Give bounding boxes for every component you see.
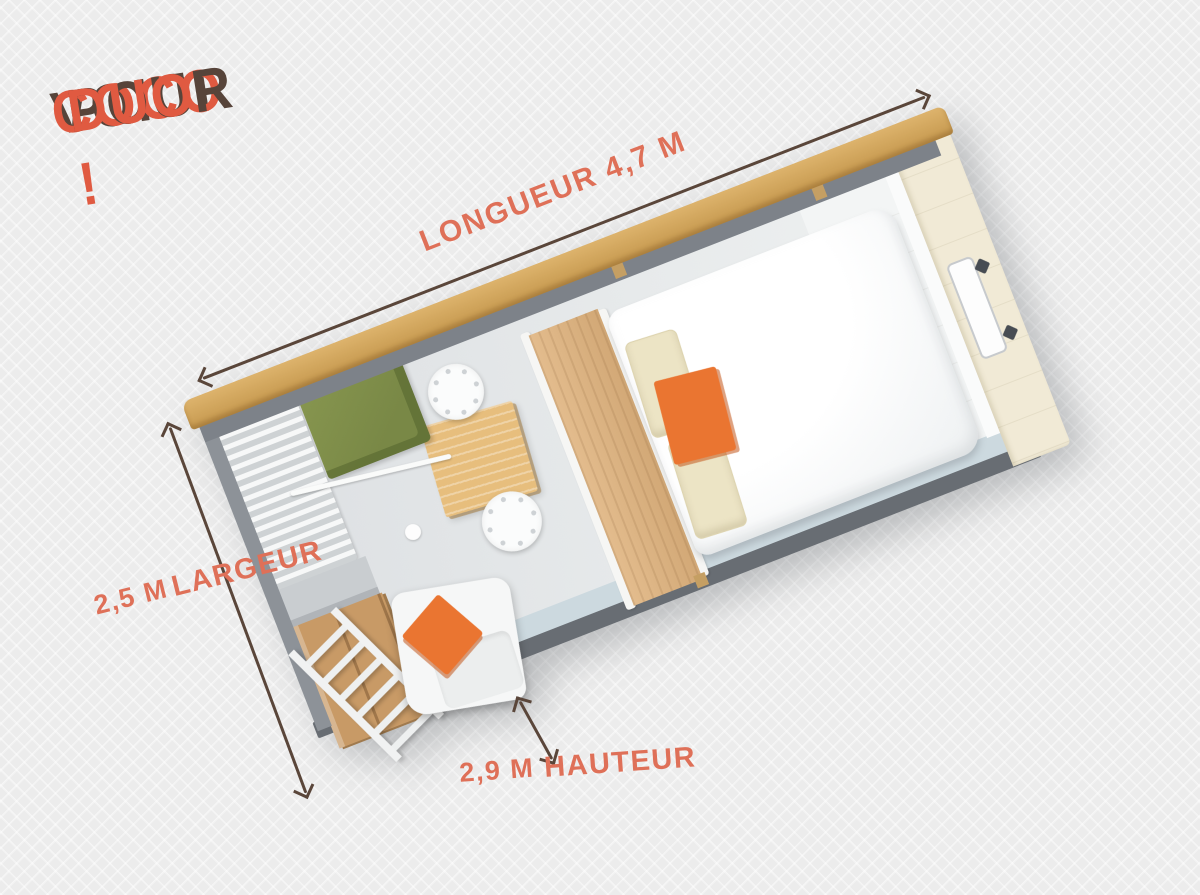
height-label-text: HAUTEUR xyxy=(543,739,698,787)
title-word-duo: DUO ! xyxy=(62,57,212,223)
cabin xyxy=(193,116,1076,761)
page-title: VOICI COCO POUR DUO ! xyxy=(47,12,472,79)
armchair xyxy=(389,575,527,717)
width-dimension-label: LARGEUR 2,5 M xyxy=(90,551,245,590)
width-value-text: 2,5 M xyxy=(90,571,171,623)
height-value-text: 2,9 M xyxy=(458,751,535,791)
floorplan-diagram: VOICI COCO POUR DUO ! LONGUEUR 4,7 M LAR… xyxy=(0,0,1200,895)
